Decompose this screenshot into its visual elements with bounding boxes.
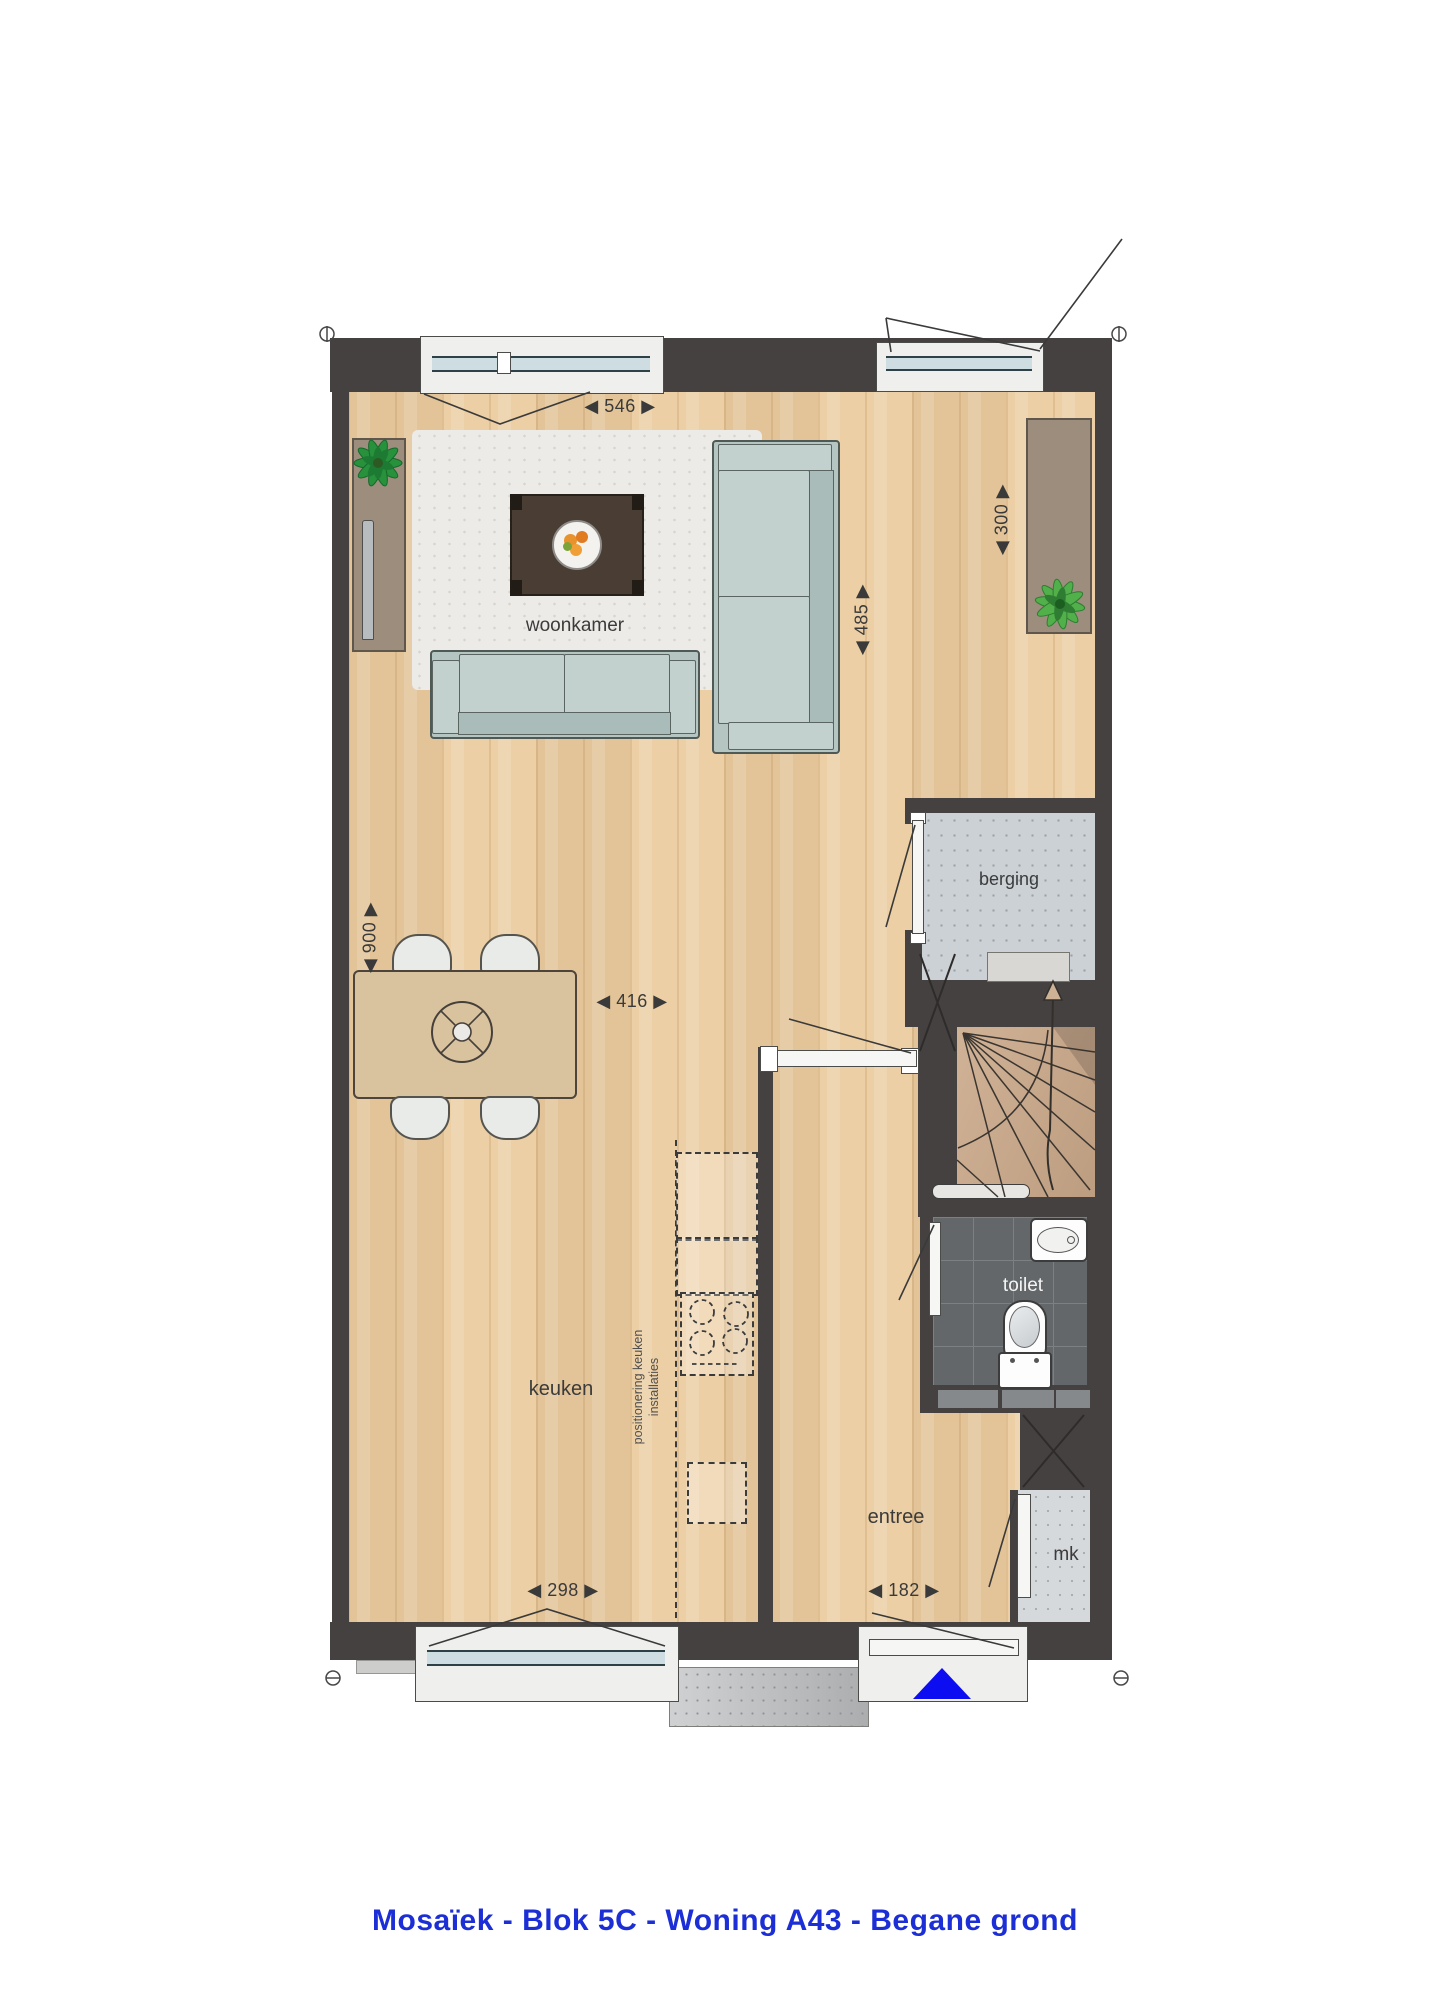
dim-485: ◀ 485 ▶: [852, 550, 873, 690]
pendant-lamp: [432, 1002, 492, 1062]
window-topright-swing: [886, 239, 1122, 352]
kitchen-note: positionering keuken installaties: [630, 1297, 662, 1477]
entrance-arrow: [913, 1668, 971, 1699]
dim-416: ◀ 416 ▶: [562, 991, 702, 1012]
plant-right: [1034, 578, 1085, 629]
dim-298: ◀ 298 ▶: [493, 1580, 633, 1601]
stair-shadow: [1053, 1027, 1095, 1085]
mk-door-swing: [989, 1499, 1015, 1587]
front-door-swing: [872, 1613, 1014, 1648]
room-label-keuken: keuken: [481, 1378, 641, 1401]
room-label-berging: berging: [929, 869, 1089, 890]
stair-up-arrow: [1044, 981, 1062, 1190]
plant-left: [354, 438, 402, 487]
room-label-entree: entree: [816, 1506, 976, 1529]
room-label-mk: mk: [986, 1544, 1146, 1566]
kitchen-note-line1: positionering keuken: [630, 1297, 646, 1477]
linework-overlay: [0, 0, 1447, 2008]
hall-door-swing: [789, 1019, 911, 1053]
dim-300: ◀ 300 ▶: [992, 450, 1013, 590]
room-label-toilet: toilet: [943, 1275, 1103, 1297]
dim-900: ◀ 900 ▶: [360, 868, 381, 1008]
toilet-door-swing: [899, 1225, 934, 1300]
dim-182: ◀ 182 ▶: [834, 1580, 974, 1601]
window-kitchen-swing: [429, 1609, 665, 1646]
page-title: Mosaïek - Blok 5C - Woning A43 - Begane …: [280, 1904, 1170, 1938]
dim-546: ◀ 546 ▶: [550, 396, 690, 417]
room-label-woonkamer: woonkamer: [495, 615, 655, 637]
cooktop-burners: [690, 1300, 748, 1364]
berging-door-swing: [886, 825, 915, 927]
kitchen-note-line2: installaties: [646, 1297, 662, 1477]
floorplan-page: { "title": "Mosaïek - Blok 5C - Woning A…: [0, 0, 1447, 2008]
